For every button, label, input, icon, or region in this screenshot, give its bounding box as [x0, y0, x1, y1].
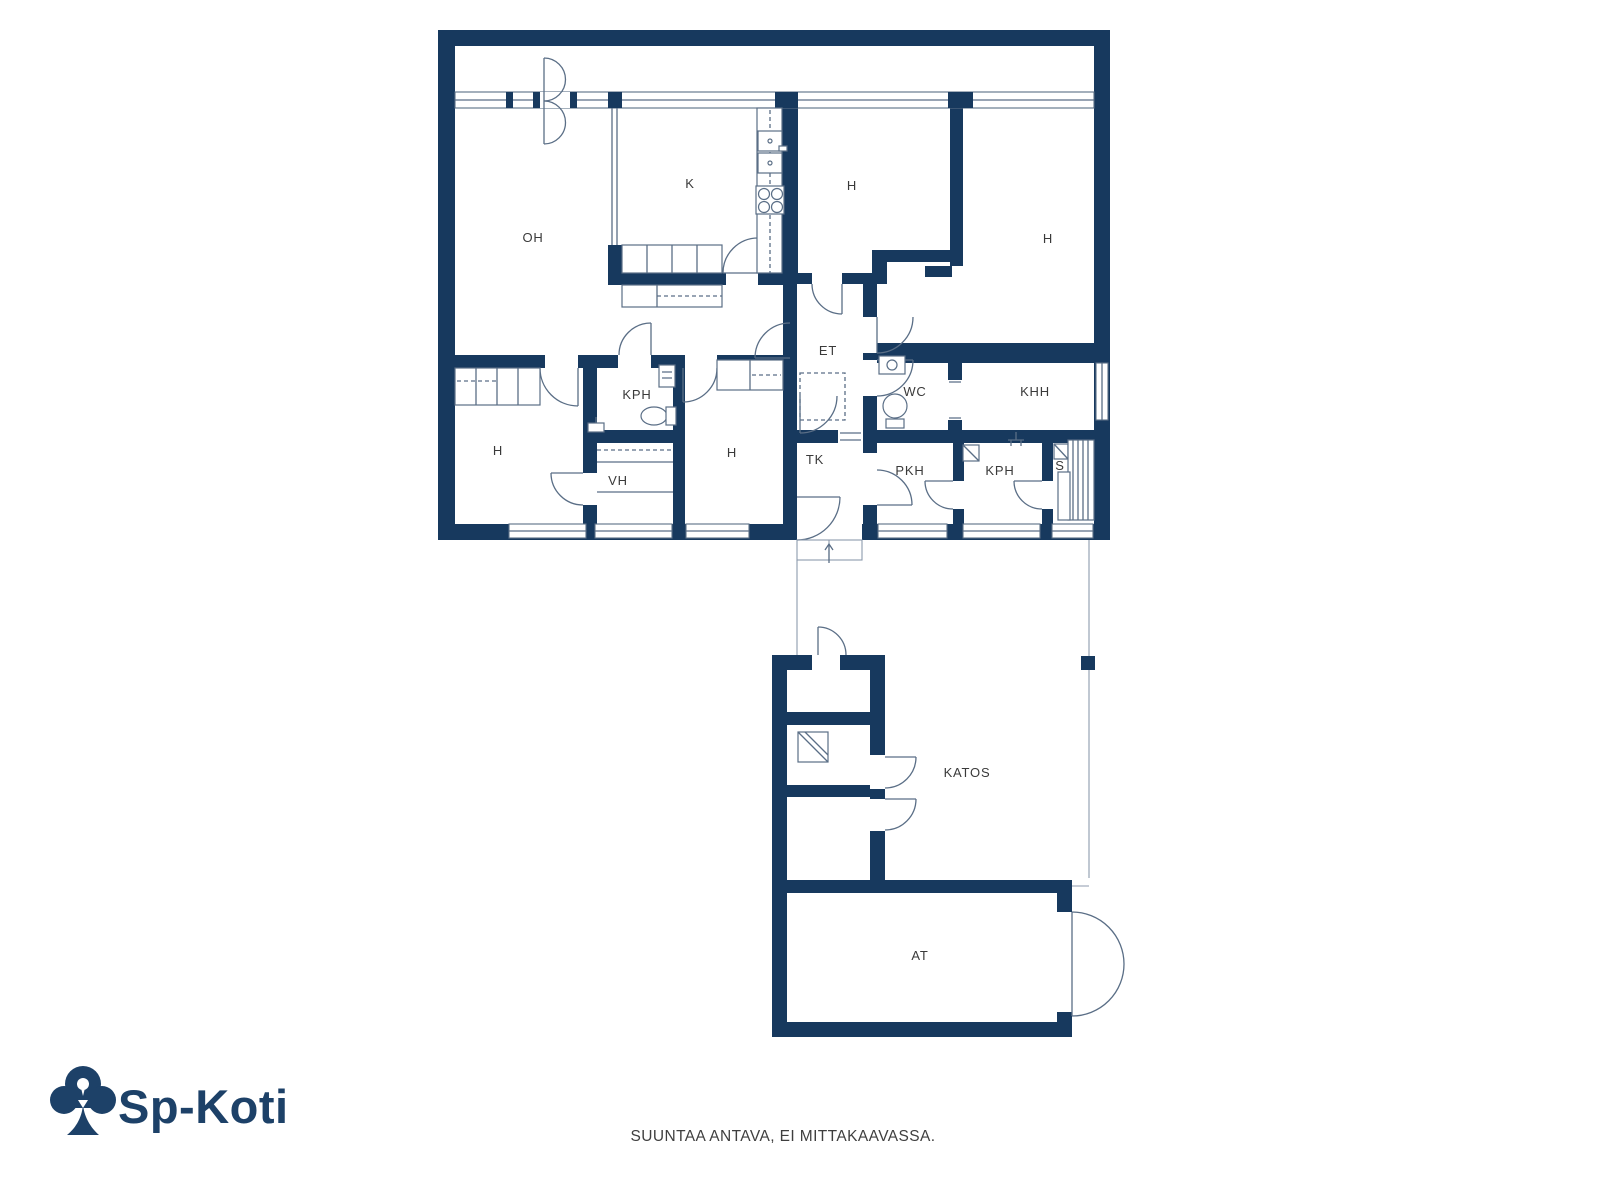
- outbuilding: [772, 540, 1124, 1037]
- room-label-et: ET: [819, 343, 837, 358]
- room-label-vh: VH: [608, 473, 628, 488]
- room-label-k: K: [685, 176, 694, 191]
- room-label-tk: TK: [806, 452, 824, 467]
- floor-plan-image: OH K H H ET WC KHH KPH H H VH TK PKH KPH…: [0, 0, 1600, 1200]
- canopy-post: [1081, 656, 1095, 670]
- tree-icon: [50, 1066, 116, 1135]
- room-label-h3: H: [493, 443, 503, 458]
- toilet-icon: [641, 407, 667, 425]
- disclaimer-text: SUUNTAA ANTAVA, EI MITTAKAAVASSA.: [631, 1128, 936, 1145]
- room-label-oh: OH: [522, 230, 543, 245]
- room-label-kph2: KPH: [985, 463, 1014, 478]
- room-label-pkh: PKH: [895, 463, 924, 478]
- fixtures: [455, 108, 1094, 563]
- sp-koti-logo: Sp-Koti: [50, 1066, 289, 1135]
- room-label-h4: H: [727, 445, 737, 460]
- sink-icon: [588, 423, 604, 432]
- room-label-s: S: [1055, 458, 1064, 473]
- room-label-at: AT: [911, 948, 928, 963]
- cabinet-icon: [659, 365, 675, 387]
- room-label-katos: KATOS: [944, 765, 991, 780]
- brand-text: Sp-Koti: [118, 1080, 289, 1133]
- room-label-kph1: KPH: [622, 387, 651, 402]
- room-label-khh: KHH: [1020, 384, 1050, 399]
- room-label-wc: WC: [903, 384, 926, 399]
- room-label-h1: H: [847, 178, 857, 193]
- et-hatch-dashed: [800, 373, 845, 420]
- floor-plan-page: OH K H H ET WC KHH KPH H H VH TK PKH KPH…: [0, 0, 1600, 1200]
- room-label-h2: H: [1043, 231, 1053, 246]
- front-door-opening: [797, 524, 862, 540]
